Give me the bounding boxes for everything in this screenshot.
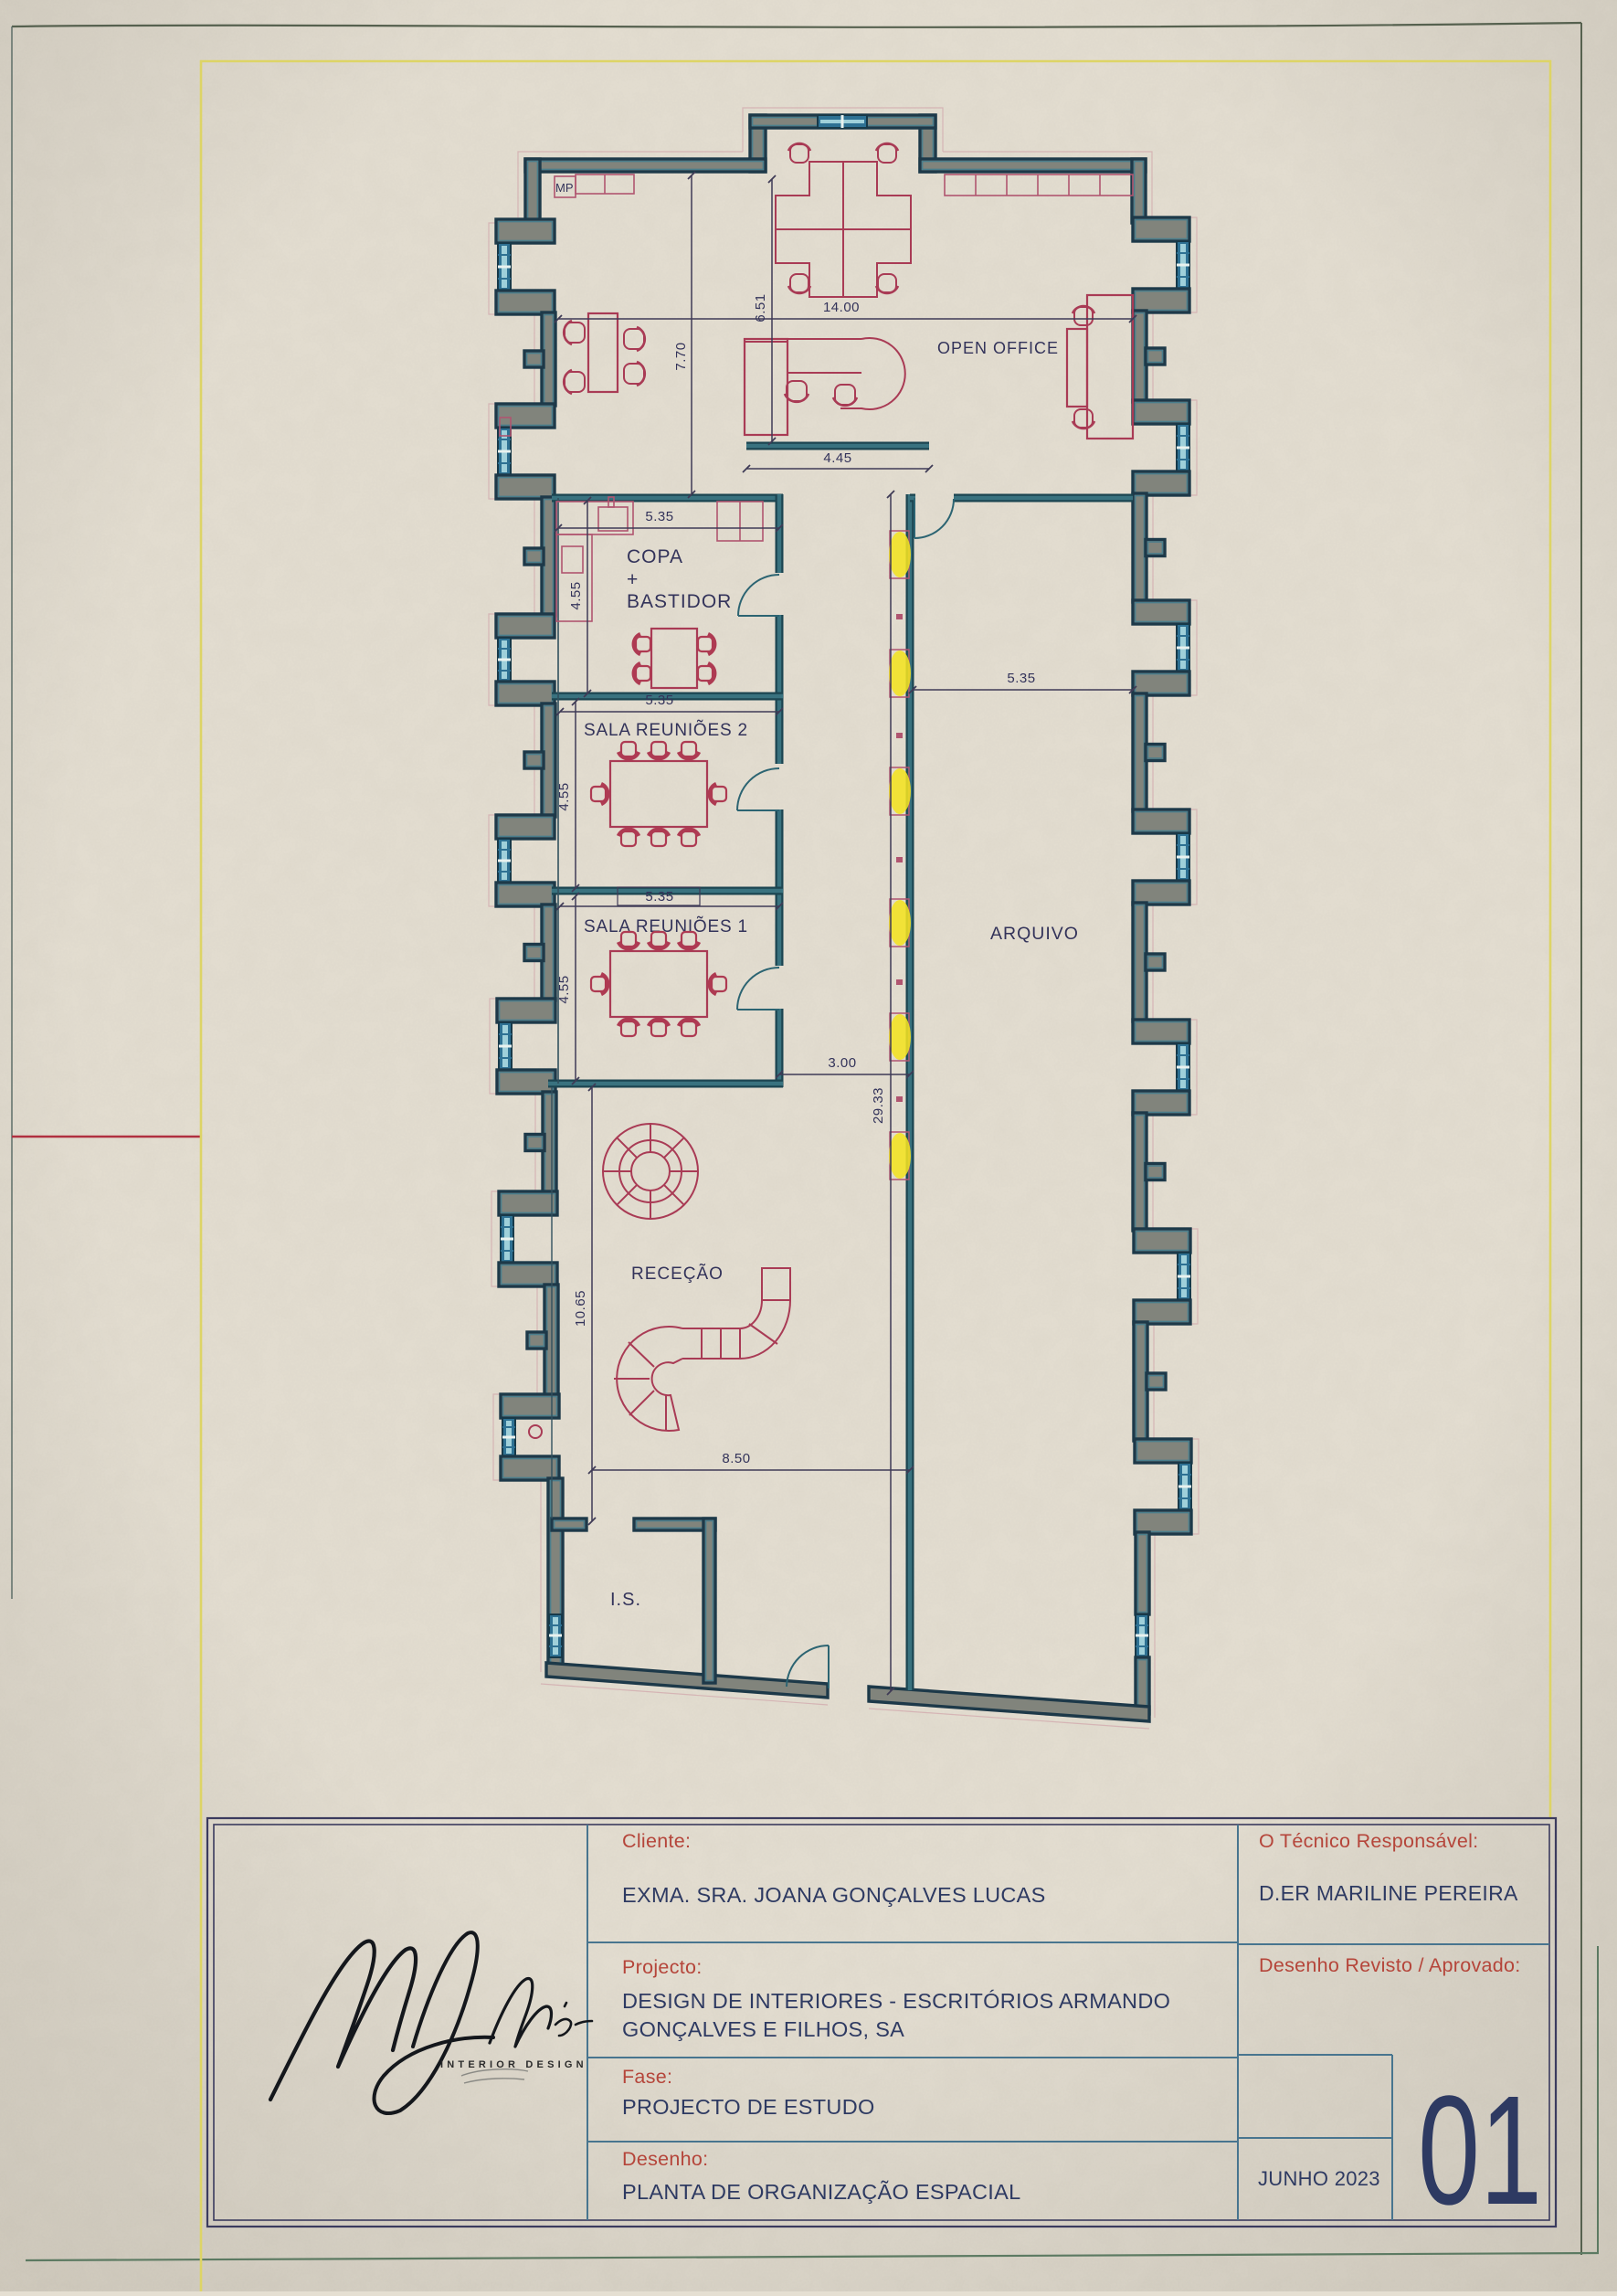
svg-text:5.35: 5.35 bbox=[645, 509, 673, 524]
svg-text:29.33: 29.33 bbox=[871, 1087, 886, 1124]
svg-text:DESIGN DE INTERIORES - ESCRITÓ: DESIGN DE INTERIORES - ESCRITÓRIOS ARMAN… bbox=[622, 1989, 1170, 2013]
svg-text:4.55: 4.55 bbox=[568, 581, 584, 609]
svg-text:OPEN OFFICE: OPEN OFFICE bbox=[937, 339, 1059, 357]
svg-text:JUNHO 2023: JUNHO 2023 bbox=[1258, 2167, 1380, 2190]
svg-text:Fase:: Fase: bbox=[622, 2066, 672, 2088]
svg-text:Projecto:: Projecto: bbox=[622, 1956, 703, 1978]
svg-text:D.ER MARILINE PEREIRA: D.ER MARILINE PEREIRA bbox=[1259, 1881, 1518, 1905]
svg-text:Desenho Revisto / Aprovado:: Desenho Revisto / Aprovado: bbox=[1259, 1954, 1521, 1976]
svg-text:PLANTA DE ORGANIZAÇÃO ESPACIAL: PLANTA DE ORGANIZAÇÃO ESPACIAL bbox=[622, 2180, 1020, 2204]
svg-text:Desenho:: Desenho: bbox=[622, 2148, 708, 2170]
svg-text:MP: MP bbox=[555, 181, 574, 195]
svg-text:10.65: 10.65 bbox=[573, 1290, 588, 1327]
svg-text:I.S.: I.S. bbox=[610, 1590, 641, 1610]
svg-text:EXMA. SRA. JOANA GONÇALVES LUC: EXMA. SRA. JOANA GONÇALVES LUCAS bbox=[622, 1883, 1046, 1907]
svg-text:Cliente:: Cliente: bbox=[622, 1830, 691, 1852]
svg-text:4.55: 4.55 bbox=[556, 782, 572, 810]
svg-text:ARQUIVO: ARQUIVO bbox=[990, 924, 1079, 944]
svg-text:7.70: 7.70 bbox=[673, 342, 689, 370]
svg-text:4.45: 4.45 bbox=[823, 450, 851, 466]
svg-text:3.00: 3.00 bbox=[828, 1055, 856, 1071]
svg-text:5.35: 5.35 bbox=[1007, 671, 1035, 686]
svg-text:SALA REUNIÕES 2: SALA REUNIÕES 2 bbox=[584, 720, 748, 740]
svg-text:INTERIOR DESIGN: INTERIOR DESIGN bbox=[440, 2059, 587, 2070]
svg-text:5.35: 5.35 bbox=[645, 889, 673, 905]
svg-text:+: + bbox=[627, 569, 639, 590]
svg-text:PROJECTO DE ESTUDO: PROJECTO DE ESTUDO bbox=[622, 2095, 875, 2119]
svg-text:6.51: 6.51 bbox=[753, 293, 768, 322]
svg-text:COPA: COPA bbox=[627, 546, 683, 567]
svg-text:4.55: 4.55 bbox=[556, 975, 572, 1003]
svg-text:8.50: 8.50 bbox=[722, 1451, 750, 1466]
svg-text:01: 01 bbox=[1418, 2064, 1542, 2238]
svg-text:RECEÇÃO: RECEÇÃO bbox=[631, 1264, 724, 1284]
svg-text:5.35: 5.35 bbox=[645, 693, 673, 708]
svg-text:BASTIDOR: BASTIDOR bbox=[627, 591, 732, 612]
svg-text:O Técnico Responsável:: O Técnico Responsável: bbox=[1259, 1830, 1478, 1852]
svg-text:14.00: 14.00 bbox=[823, 300, 860, 315]
svg-text:GONÇALVES E FILHOS, SA: GONÇALVES E FILHOS, SA bbox=[622, 2017, 904, 2041]
